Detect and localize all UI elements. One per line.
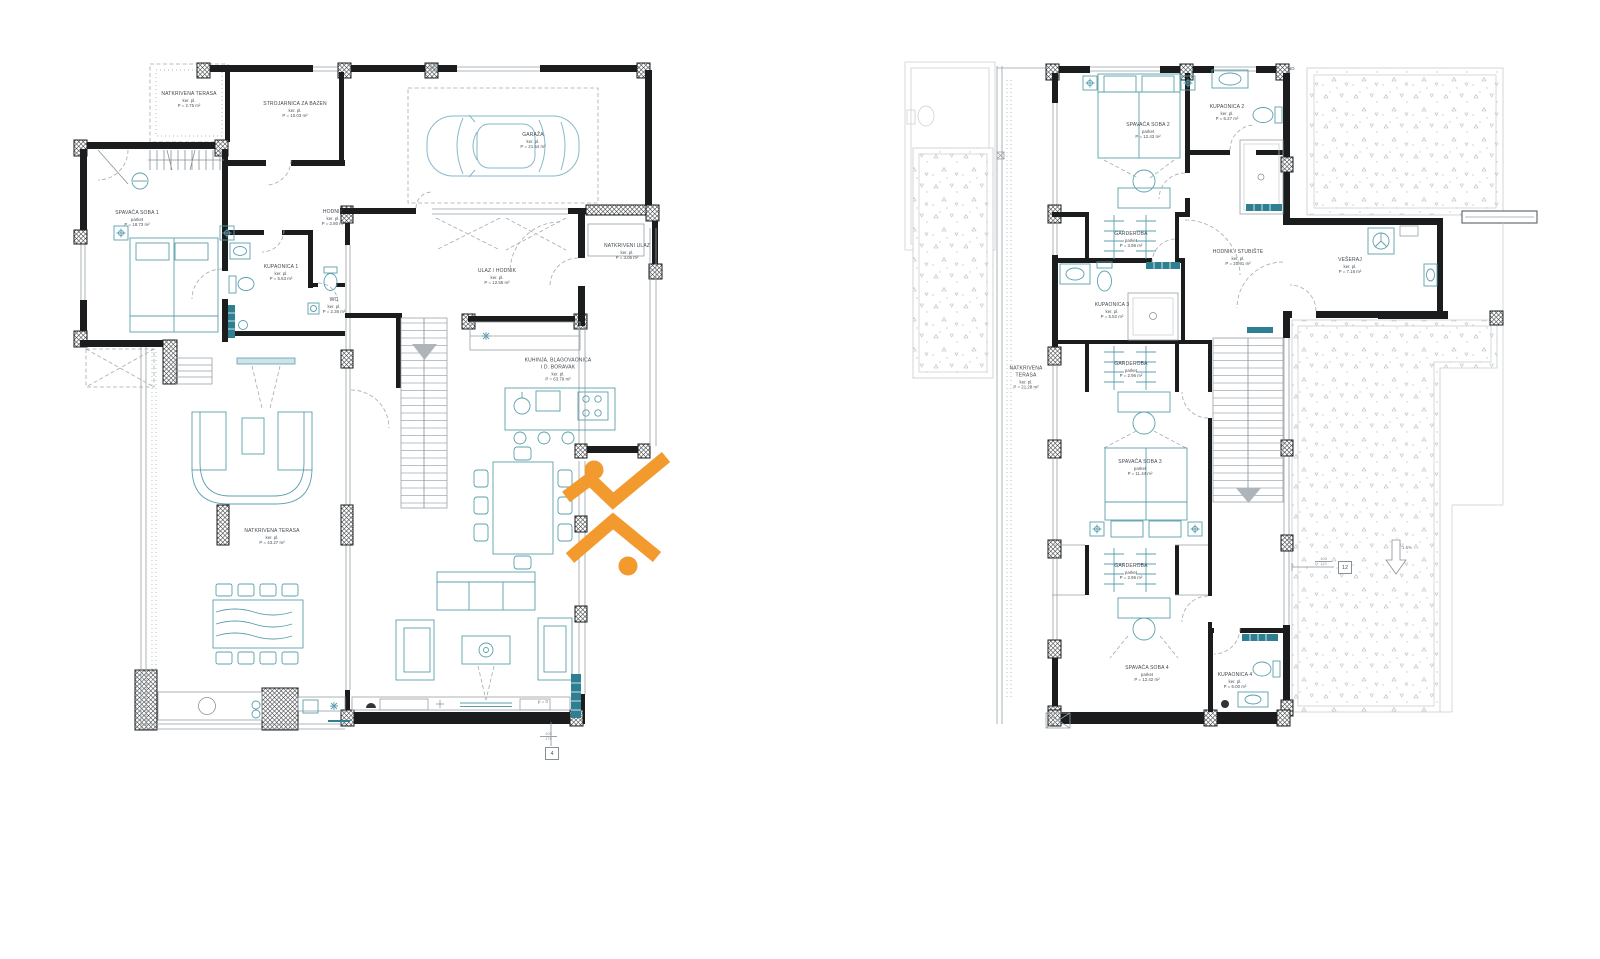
room-name: GARAŽA bbox=[520, 132, 545, 139]
slope-label: 1.5% bbox=[1402, 545, 1412, 550]
wardrobe-hangers-1 bbox=[98, 150, 224, 189]
room-name: KUPAONICA 3 bbox=[1095, 302, 1130, 309]
terrace-sofa bbox=[192, 358, 312, 504]
room-label-spavaca-1: SPAVAĆA SOBA 1 parket P = 18.73 m² bbox=[115, 210, 159, 228]
room-name-2: TERASA bbox=[1009, 372, 1042, 379]
room-name-2: I D. BORAVAK bbox=[525, 364, 592, 371]
laundry-fixtures bbox=[1368, 226, 1437, 286]
room-label-terrace-small: NATKRIVENA TERASA ker. pl. P = 2.75 m² bbox=[161, 91, 216, 109]
room-area: P = 12.42 m² bbox=[1125, 677, 1169, 683]
room-area: P = 43.27 m² bbox=[244, 540, 299, 546]
room-area: P = 2.96 m² bbox=[1114, 575, 1147, 581]
tag-number: 12 bbox=[1342, 565, 1348, 571]
room-area: P = 63.79 m² bbox=[525, 377, 592, 383]
bathroom-1-fixtures bbox=[228, 243, 254, 338]
window-tag-ground: 4 bbox=[545, 747, 559, 760]
kitchen-counter-top bbox=[470, 322, 580, 350]
room-area: P = 12.55 m² bbox=[478, 280, 516, 286]
room-area: P = 5.53 m² bbox=[264, 276, 299, 282]
room-label-spavaca-2: SPAVAĆA SOBA 2 parket P = 12.43 m² bbox=[1126, 122, 1170, 140]
room-name: KUHINJA, BLAGOVAONICA bbox=[525, 358, 592, 365]
room-name: HODNIK bbox=[322, 209, 345, 216]
bed-4-dresser bbox=[1110, 598, 1178, 658]
window-dims-ground: 105 170 bbox=[540, 732, 557, 742]
room-area: P = 21.54 m² bbox=[520, 144, 545, 150]
room-area: P = 18.73 m² bbox=[115, 222, 159, 228]
room-name: GARDEROBA bbox=[1114, 361, 1147, 368]
room-label-kupaonica-3: KUPAONICA 3 ker. pl. P = 5.52 m² bbox=[1095, 302, 1130, 320]
room-label-kupaonica-4: KUPAONICA 4 ker. pl. P = 6.00 m² bbox=[1218, 672, 1253, 690]
room-label-wc: WC ker. pl. P = 2.36 m² bbox=[323, 297, 346, 315]
room-area: P = 20.91 m² bbox=[1213, 261, 1264, 267]
room-name: SPAVAĆA SOBA 4 bbox=[1125, 665, 1169, 672]
room-name: VEŠERAJ bbox=[1338, 257, 1362, 264]
room-label-natkriveni-ulaz: NATKRIVENI ULAZ ker. pl. P = 3.06 m² bbox=[604, 243, 650, 261]
living-room-sofas bbox=[396, 572, 581, 718]
room-area: P = 11.44 m² bbox=[1118, 471, 1162, 477]
room-name: GARDEROBA bbox=[1114, 563, 1147, 570]
room-area: P = 6.27 m² bbox=[1210, 116, 1245, 122]
dim-bottom: 170 bbox=[540, 737, 557, 741]
room-label-kupaonica-1: KUPAONICA 1 ker. pl. P = 5.53 m² bbox=[264, 264, 299, 282]
bed-2 bbox=[1083, 74, 1195, 208]
room-label-spavaca-3: SPAVAĆA SOBA 3 parket P = 11.44 m² bbox=[1118, 459, 1162, 477]
room-area: P = 3.06 m² bbox=[604, 255, 650, 261]
room-name: NATKRIVENI ULAZ bbox=[604, 243, 650, 250]
level-marker-ground: p = 0 bbox=[538, 699, 548, 704]
floorplan-canvas: NATKRIVENA TERASA ker. pl. P = 2.75 m² S… bbox=[0, 0, 1600, 959]
room-name: NATKRIVENA TERASA bbox=[161, 91, 216, 98]
bed-1 bbox=[114, 226, 234, 332]
room-name: SPAVAĆA SOBA 3 bbox=[1118, 459, 1162, 466]
room-area: P = 12.43 m² bbox=[1126, 134, 1170, 140]
room-name: NATKRIVENA TERASA bbox=[244, 528, 299, 535]
room-area: P = 5.52 m² bbox=[1095, 314, 1130, 320]
stairs-upper bbox=[1213, 327, 1283, 503]
entry-details bbox=[430, 64, 644, 256]
floorplan-drawing bbox=[0, 0, 1600, 959]
garage-outline bbox=[408, 88, 598, 203]
room-label-kupaonica-2: KUPAONICA 2 ker. pl. P = 6.27 m² bbox=[1210, 104, 1245, 122]
garderoba-closets bbox=[1104, 215, 1156, 592]
room-label-hodnik: HODNIK ker. pl. P = 2.80 m² bbox=[322, 209, 345, 227]
room-area: P = 21.28 m² bbox=[1009, 385, 1042, 391]
room-area: P = 3.96 m² bbox=[1114, 243, 1147, 249]
room-label-kuhinja: KUHINJA, BLAGOVAONICA I D. BORAVAK ker. … bbox=[525, 358, 592, 383]
room-area: P = 2.36 m² bbox=[323, 309, 346, 315]
room-area: P = 6.00 m² bbox=[1218, 684, 1253, 690]
room-label-terasa-upper: NATKRIVENA TERASA ker. pl. P = 21.28 m² bbox=[1009, 366, 1042, 391]
room-label-garderoba-b: GARDEROBA parket P = 2.96 m² bbox=[1114, 361, 1147, 379]
dining-table bbox=[474, 447, 572, 569]
room-name: NATKRIVENA bbox=[1009, 366, 1042, 373]
room-name: ULAZ / HODNIK bbox=[478, 268, 516, 275]
room-area: P = 2.96 m² bbox=[1114, 373, 1147, 379]
room-name: KUPAONICA 2 bbox=[1210, 104, 1245, 111]
room-label-strojarnica: STROJARNICA ZA BAZEN ker. pl. P = 10.03 … bbox=[263, 101, 327, 119]
bathroom-2-fixtures bbox=[1212, 70, 1283, 214]
window-tag-upper: 12 bbox=[1338, 561, 1352, 574]
window-dims-upper: 105 170 bbox=[1315, 557, 1332, 567]
room-name: STROJARNICA ZA BAZEN bbox=[263, 101, 327, 108]
stairs-ground bbox=[401, 318, 447, 508]
parapet-note: p = 45 bbox=[1287, 537, 1291, 548]
room-label-garderoba-a: GARDEROBA parket P = 3.96 m² bbox=[1114, 231, 1147, 249]
dim-bottom: 170 bbox=[1315, 562, 1332, 566]
garage-car bbox=[427, 115, 579, 177]
room-label-garderoba-c: GARDEROBA parket P = 2.96 m² bbox=[1114, 563, 1147, 581]
room-name: SPAVAĆA SOBA 2 bbox=[1126, 122, 1170, 129]
first-floor-drawing bbox=[905, 62, 1537, 728]
tag-number: 4 bbox=[550, 751, 553, 757]
summer-kitchen bbox=[158, 692, 350, 721]
room-name: SPAVAĆA SOBA 1 bbox=[115, 210, 159, 217]
kitchen-island bbox=[505, 388, 615, 444]
room-area: P = 2.75 m² bbox=[161, 103, 216, 109]
ground-floor-drawing bbox=[74, 63, 662, 746]
room-label-hodnik-stubiste: HODNIK / STUBIŠTE ker. pl. P = 20.91 m² bbox=[1213, 249, 1264, 267]
room-label-veseraj: VEŠERAJ ker. pl. P = 7.16 m² bbox=[1338, 257, 1362, 275]
room-name: KUPAONICA 1 bbox=[264, 264, 299, 271]
room-label-garaza: GARAŽA ker. pl. P = 21.54 m² bbox=[520, 132, 545, 150]
room-name: HODNIK / STUBIŠTE bbox=[1213, 249, 1264, 256]
room-label-terasa-velika: NATKRIVENA TERASA ker. pl. P = 43.27 m² bbox=[244, 528, 299, 546]
outdoor-dining-table bbox=[213, 584, 303, 664]
room-name: KUPAONICA 4 bbox=[1218, 672, 1253, 679]
room-label-ulaz-hodnik: ULAZ / HODNIK ker. pl. P = 12.55 m² bbox=[478, 268, 516, 286]
room-area: P = 10.03 m² bbox=[263, 113, 327, 119]
room-area: P = 2.80 m² bbox=[322, 221, 345, 227]
room-label-spavaca-4: SPAVAĆA SOBA 4 parket P = 12.42 m² bbox=[1125, 665, 1169, 683]
room-area: P = 7.16 m² bbox=[1338, 269, 1362, 275]
room-name: WC bbox=[323, 297, 346, 304]
corner-note: NO bbox=[1288, 66, 1295, 71]
room-name: GARDEROBA bbox=[1114, 231, 1147, 238]
walls-ground bbox=[74, 63, 662, 730]
